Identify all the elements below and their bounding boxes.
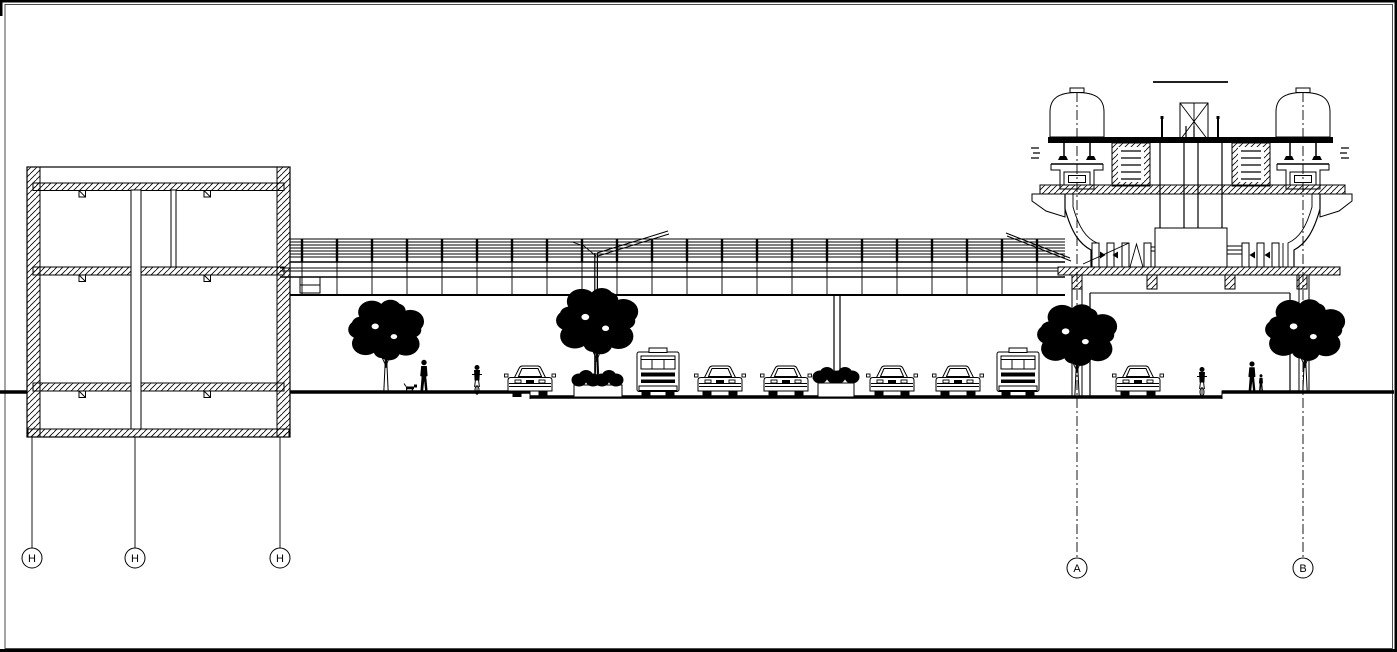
vibration-ticks-left (1031, 148, 1040, 158)
car-icon (761, 366, 812, 397)
building-partition-wall (171, 190, 176, 267)
building-ground-slab (33, 383, 284, 391)
building-roof-slab (33, 183, 284, 191)
building-base-slab (28, 429, 289, 437)
grid-bubble-label: B (1299, 563, 1306, 575)
damper-box-left (1112, 143, 1150, 186)
grid-marker: H (125, 437, 145, 568)
grid-bubble-label: H (131, 553, 139, 565)
machinery-left (1083, 243, 1155, 267)
frame-inner-border (5, 5, 1393, 649)
building-outline (27, 167, 290, 437)
tank-mounts (1051, 143, 1329, 189)
building-wall-right (277, 167, 290, 437)
grid-bubble-label: H (276, 553, 284, 565)
car-icon (1113, 366, 1164, 397)
grid-marker: H (22, 437, 42, 568)
machine-pedestal (1155, 228, 1227, 267)
pier-wing-left (1032, 194, 1065, 217)
tree-icon (1265, 299, 1345, 392)
sheet-frame (0, 0, 1397, 652)
pier-wing-right (1320, 194, 1352, 217)
bridge-end-bracket (300, 277, 320, 293)
left-building-section (27, 167, 290, 437)
frame-top-strip (0, 0, 1397, 3)
machinery-right (1227, 243, 1283, 267)
bridge-deck (280, 268, 1065, 295)
lamp-arm-long (597, 231, 669, 256)
car-icon (867, 366, 918, 397)
car-icon (695, 366, 746, 397)
car-icon (933, 366, 984, 397)
child-icon (1259, 374, 1263, 392)
bridge-posts (301, 239, 1038, 295)
drawing-canvas: HHHAB (0, 0, 1397, 652)
adult-with-child-icon (1248, 361, 1263, 392)
platform-slab (1048, 137, 1333, 143)
walker-icon (420, 360, 427, 392)
bus-icon (997, 348, 1039, 397)
tree-planter (574, 385, 622, 397)
bush-icon (831, 367, 860, 384)
column-stubs (1072, 275, 1307, 289)
grid-marker: H (270, 437, 290, 568)
tree-icon (348, 300, 424, 392)
pier-cap (1040, 185, 1345, 194)
vibration-ticks-right (1340, 148, 1349, 158)
grid-bubble-label: H (28, 553, 36, 565)
cyclist-icon (1197, 367, 1207, 396)
building-column (131, 190, 141, 429)
median-island (818, 383, 854, 397)
frame-corner-stub (0, 0, 3, 16)
damper-box-right (1232, 143, 1270, 186)
building-beam-stubs (79, 191, 211, 398)
station-floor-slab (1058, 267, 1340, 275)
building-wall-left (27, 167, 40, 437)
cyclist-icon (472, 365, 482, 394)
building-mid-slab (33, 267, 284, 275)
grid-bubble-label: A (1073, 563, 1081, 575)
bus-icon (637, 348, 679, 397)
